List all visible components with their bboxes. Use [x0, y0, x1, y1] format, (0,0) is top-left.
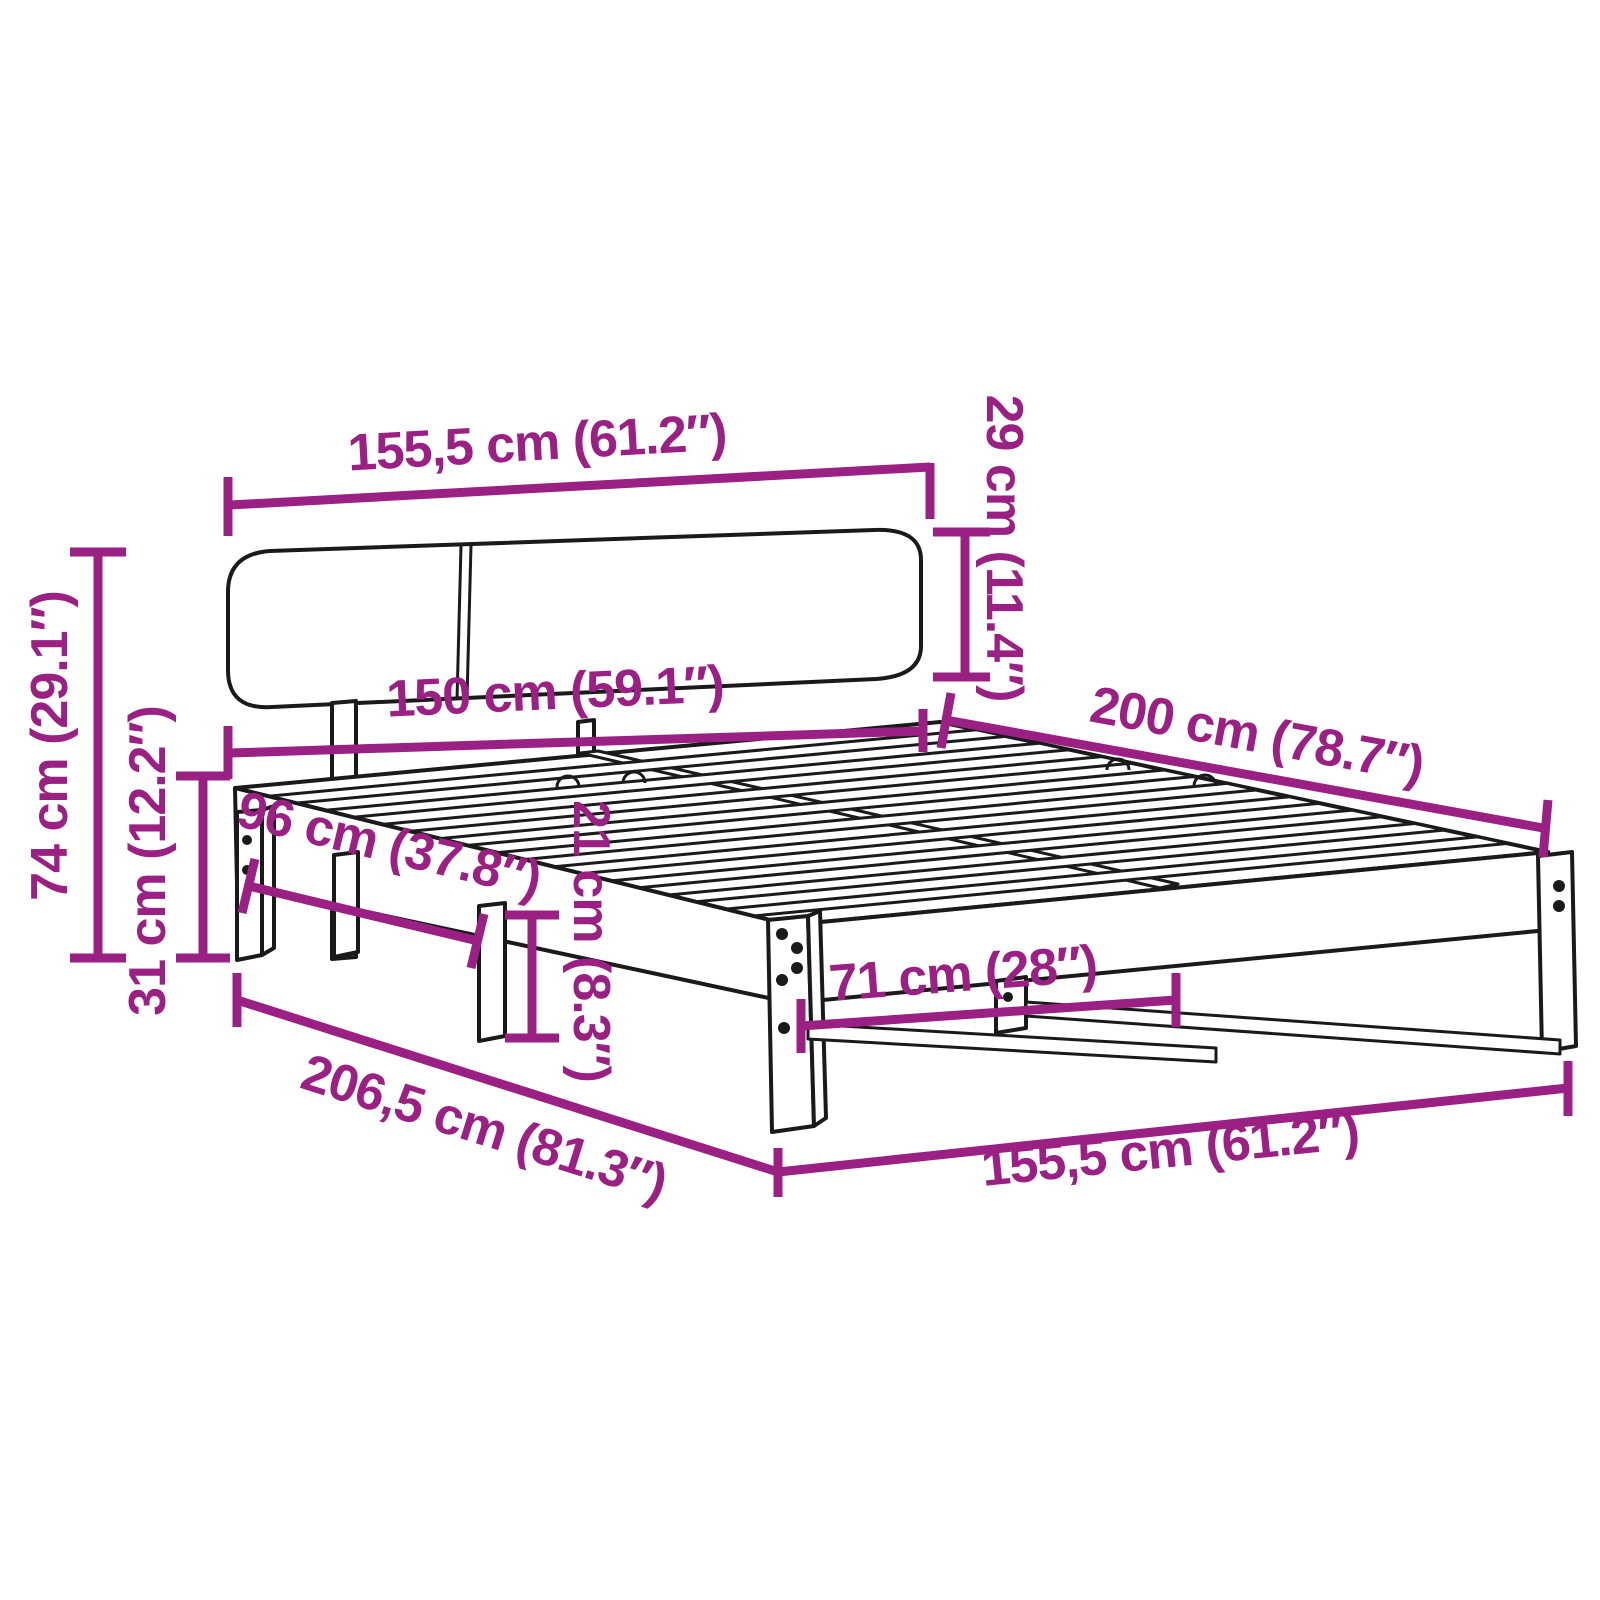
dimension-label-leg-height: 31 cm (12.2″) [119, 706, 177, 1016]
bed-dimension-diagram: 155,5 cm (61.2″) 29 cm (11.4″) 150 cm (5… [0, 0, 1600, 1600]
dimension-label-outer-width-bottom: 155,5 cm (61.2″) [979, 1102, 1362, 1198]
diagram-canvas: 155,5 cm (61.2″) 29 cm (11.4″) 150 cm (5… [0, 0, 1600, 1600]
dimension-label-total-height: 74 cm (29.1″) [21, 591, 79, 901]
dimension-label-headboard-width-top: 155,5 cm (61.2″) [346, 403, 728, 482]
dimension-label-frame-rail-height: 21 cm (8.3″) [562, 800, 620, 1082]
dimension-label-headboard-panel-height: 29 cm (11.4″) [975, 395, 1033, 702]
